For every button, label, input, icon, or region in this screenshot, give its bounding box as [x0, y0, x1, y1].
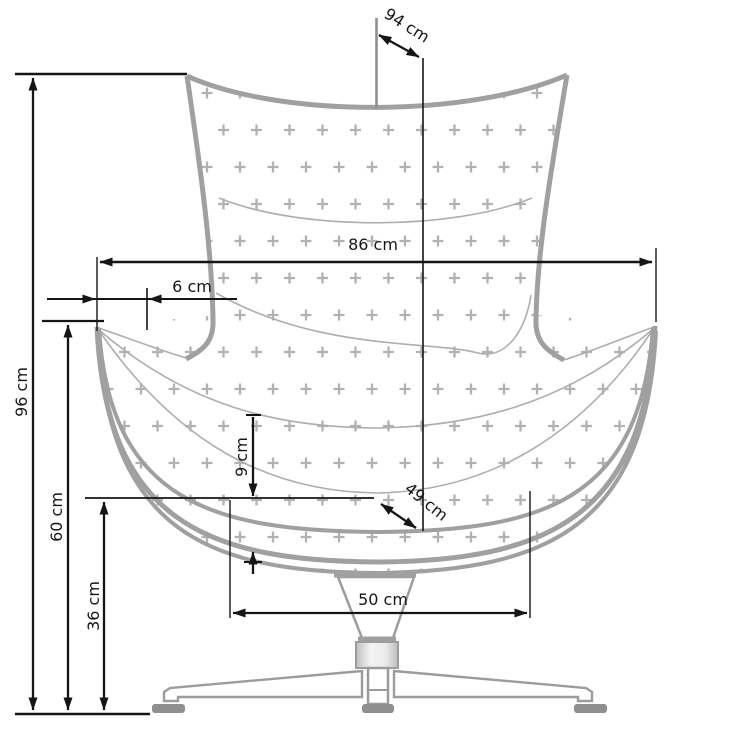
foot-pad-left — [152, 704, 185, 713]
label-armrest-height: 60 cm — [47, 492, 66, 542]
upholstery-plus-pattern — [85, 65, 665, 580]
label-side-offset: 6 cm — [172, 277, 212, 296]
label-seat-width: 50 cm — [358, 590, 408, 609]
chair-artwork — [85, 65, 665, 713]
label-seat-height: 36 cm — [84, 581, 103, 631]
technical-drawing: 96 cm 60 cm 36 cm 86 cm 6 cm 94 cm 49 cm — [0, 0, 744, 736]
center-column — [368, 668, 388, 704]
label-cushion-thickness: 9 cm — [232, 437, 251, 477]
chair-dimension-diagram: 96 cm 60 cm 36 cm 86 cm 6 cm 94 cm 49 cm — [0, 0, 744, 736]
foot-pad-center — [362, 704, 394, 713]
gas-lift-cylinder — [356, 642, 398, 668]
label-overall-width: 86 cm — [348, 235, 398, 254]
dimension-armrest-height: 60 cm — [42, 321, 104, 710]
foot-pad-right — [574, 704, 607, 713]
base-leg-left — [164, 671, 362, 701]
label-overall-height: 96 cm — [12, 367, 31, 417]
base-leg-right — [394, 671, 592, 701]
